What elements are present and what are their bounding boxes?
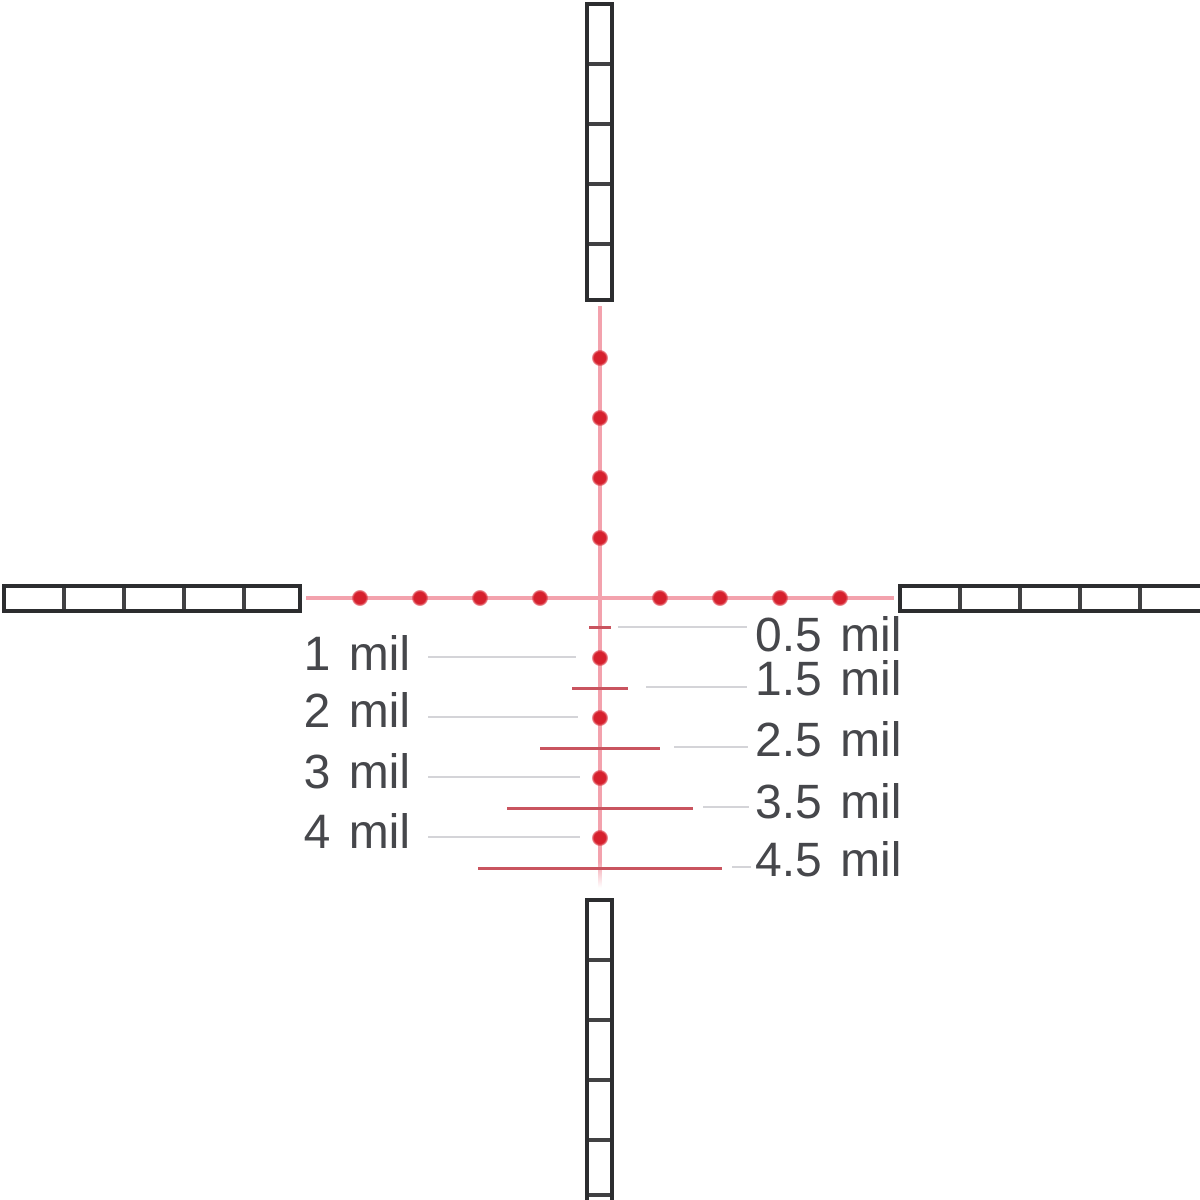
- post-segment-divider: [589, 122, 610, 126]
- crosshair-vertical-line: [598, 306, 602, 888]
- post-segment-divider: [242, 588, 246, 609]
- hash-1-5-mil: [572, 687, 628, 690]
- post-segment-divider: [589, 1078, 610, 1082]
- post-segment-divider: [958, 588, 962, 609]
- mil-dot: [592, 470, 608, 486]
- mil-label-1-5: 1.5 mil: [755, 656, 955, 704]
- mil-dot-4mil: [592, 830, 608, 846]
- mil-dot: [412, 590, 428, 606]
- post-segment-divider: [589, 1138, 610, 1142]
- mil-label-2: 2 mil: [260, 688, 410, 736]
- mil-label-4-5: 4.5 mil: [755, 837, 955, 885]
- hash-4-5-mil: [478, 867, 722, 870]
- mil-label-3-5: 3.5 mil: [755, 779, 955, 827]
- callout-line-3-5-mil: [703, 806, 749, 808]
- left-post: [2, 584, 302, 613]
- reticle-diagram: 1 mil 2 mil 3 mil 4 mil 0.5 mil 1.5 mil …: [0, 0, 1200, 1200]
- post-segment-divider: [1078, 588, 1082, 609]
- mil-dot: [532, 590, 548, 606]
- callout-line-4-mil: [428, 836, 580, 838]
- post-segment-divider: [589, 958, 610, 962]
- post-segment-divider: [589, 182, 610, 186]
- post-segment-divider: [62, 588, 66, 609]
- callout-line-2-mil: [428, 716, 578, 718]
- bottom-post: [585, 898, 614, 1200]
- mil-label-2-5: 2.5 mil: [755, 717, 955, 765]
- mil-dot-3mil: [592, 770, 608, 786]
- post-segment-divider: [182, 588, 186, 609]
- mil-label-4: 4 mil: [260, 809, 410, 857]
- mil-label-1: 1 mil: [260, 631, 410, 679]
- hash-0-5-mil: [589, 626, 611, 629]
- post-segment-divider: [1138, 588, 1142, 609]
- mil-dot: [352, 590, 368, 606]
- mil-dot: [592, 350, 608, 366]
- mil-dot: [592, 410, 608, 426]
- mil-label-3: 3 mil: [260, 749, 410, 797]
- callout-line-2-5-mil: [674, 746, 748, 748]
- post-segment-divider: [589, 242, 610, 246]
- mil-dot: [592, 530, 608, 546]
- post-segment-divider: [589, 1193, 610, 1197]
- callout-line-1-5-mil: [646, 686, 747, 688]
- mil-dot: [712, 590, 728, 606]
- hash-2-5-mil: [540, 747, 660, 750]
- callout-line-0-5-mil: [618, 626, 747, 628]
- hash-3-5-mil: [507, 807, 693, 810]
- top-post: [585, 2, 614, 302]
- mil-dot-2mil: [592, 710, 608, 726]
- post-segment-divider: [589, 62, 610, 66]
- callout-line-3-mil: [428, 776, 580, 778]
- post-segment-divider: [1018, 588, 1022, 609]
- right-post: [898, 584, 1200, 613]
- callout-line-1-mil: [428, 656, 576, 658]
- mil-dot-1mil: [592, 650, 608, 666]
- mil-dot: [652, 590, 668, 606]
- mil-dot: [772, 590, 788, 606]
- post-segment-divider: [589, 1018, 610, 1022]
- mil-dot: [472, 590, 488, 606]
- callout-line-4-5-mil: [732, 866, 751, 868]
- post-segment-divider: [122, 588, 126, 609]
- mil-dot: [832, 590, 848, 606]
